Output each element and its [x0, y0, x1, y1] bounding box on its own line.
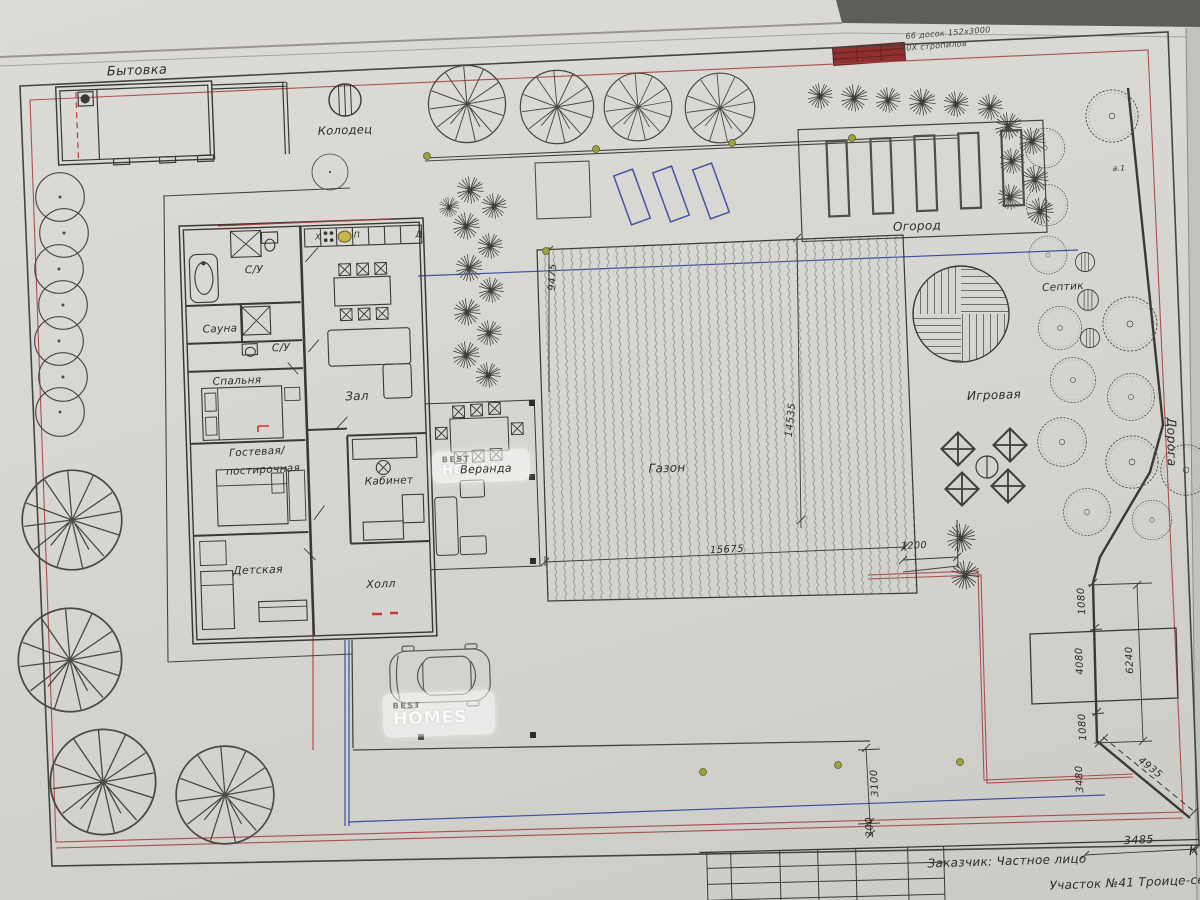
light-marker-icon — [543, 248, 550, 255]
well-symbol — [328, 83, 361, 116]
tree-icon — [520, 70, 593, 143]
garden-chair-icon — [991, 469, 1024, 502]
chair-icon — [488, 402, 500, 414]
dim-9475: 9475 — [547, 263, 559, 291]
tree-icon — [604, 73, 672, 141]
septic-tank-icon — [1075, 252, 1094, 271]
bush-icon — [947, 524, 975, 553]
dim-3100: 3100 — [869, 769, 881, 797]
bush-icon — [454, 298, 480, 325]
site-cabin — [56, 78, 290, 167]
dim-3485: 3485 — [1124, 833, 1155, 847]
light-marker-icon — [849, 135, 856, 142]
watermark-veranda: BEST HOMES — [431, 448, 530, 483]
house-plan — [179, 218, 437, 644]
dim-15675: 15675 — [710, 544, 745, 556]
shrub-icon — [312, 154, 348, 190]
light-marker-icon — [700, 769, 707, 776]
garden-chair-icon — [945, 472, 978, 505]
dim-3480: 3480 — [1074, 765, 1086, 793]
tree-icon — [50, 729, 155, 834]
tree-icon — [1029, 236, 1067, 274]
bush-icon — [995, 112, 1021, 139]
dim-1080-bottom: 1080 — [1077, 713, 1089, 741]
blue-beds — [614, 163, 730, 225]
shrub-icon — [40, 209, 89, 258]
tree-icon — [1038, 306, 1081, 349]
bush-icon — [808, 83, 833, 109]
septic-tank-icon — [1080, 328, 1099, 347]
site-plan-photo: Бытовка Колодец С/У Сауна С/У Спальня За… — [0, 0, 1200, 900]
bush-icon — [457, 176, 483, 203]
watermark-line2: HOMES — [393, 707, 486, 729]
chair-icon — [435, 427, 447, 439]
tree-icon — [18, 608, 121, 711]
chair-icon — [471, 404, 483, 416]
tree-icon — [1051, 358, 1096, 403]
bush-icon — [841, 84, 867, 111]
bush-icon — [479, 277, 504, 303]
tree-icon — [1038, 418, 1087, 467]
chair-icon — [340, 309, 352, 321]
chair-icon — [339, 264, 351, 276]
tree-icon — [1132, 500, 1172, 540]
tree-icon — [428, 65, 505, 142]
dim-6240: 6240 — [1124, 646, 1136, 674]
bush-icon — [477, 320, 502, 346]
watermark-car: BEST HOMES — [382, 690, 495, 738]
garden-table-set — [976, 456, 998, 478]
tree-icon — [685, 73, 755, 143]
garden-chair-icon — [941, 432, 974, 465]
site-plan-linework — [0, 0, 1200, 900]
shrub-icon — [35, 245, 84, 294]
bush-icon — [978, 94, 1003, 120]
septic-tank-icon — [1078, 290, 1099, 311]
title-block — [700, 839, 1200, 900]
post-marker-icon — [530, 558, 536, 564]
shrub-icon — [39, 281, 88, 330]
bush-icon — [482, 193, 507, 219]
shrub-icon — [36, 388, 85, 437]
chair-icon — [358, 308, 370, 320]
chair-icon — [376, 307, 388, 319]
dim-4080: 4080 — [1074, 647, 1086, 675]
garden-chair-icon — [993, 428, 1026, 461]
tree-icon — [1106, 436, 1158, 488]
pad-square — [535, 161, 591, 219]
bush-icon — [439, 197, 459, 217]
light-marker-icon — [835, 762, 842, 769]
bush-icon — [876, 87, 901, 113]
tree-icon — [1103, 297, 1157, 351]
tree-icon — [176, 746, 274, 844]
bush-icon — [909, 88, 935, 115]
dim-300: 300 — [864, 816, 876, 837]
bush-icon — [453, 341, 479, 368]
light-marker-icon — [593, 146, 600, 153]
dim-1080-top: 1080 — [1076, 587, 1088, 615]
bush-icon — [476, 362, 501, 388]
dim-1200: 1200 — [901, 540, 928, 552]
post-marker-icon — [529, 400, 535, 406]
light-marker-icon — [729, 140, 736, 147]
shrub-icon — [39, 353, 88, 402]
light-marker-icon — [957, 759, 964, 766]
tree-icon — [1064, 489, 1111, 536]
bush-icon — [944, 91, 969, 117]
garden-chairs — [941, 428, 1026, 505]
photo-background — [836, 0, 1200, 27]
bush-icon — [453, 212, 479, 239]
shrub-icon — [36, 173, 85, 222]
tree-icon — [1108, 374, 1155, 421]
bush-icon — [456, 254, 482, 281]
chair-icon — [453, 406, 465, 418]
shrub-icon — [35, 317, 84, 366]
chair-icon — [357, 263, 369, 275]
future-building — [1030, 628, 1178, 704]
bush-icon — [478, 233, 503, 259]
watermark-line2: HOMES — [442, 461, 520, 478]
veranda-plan — [425, 400, 540, 570]
play-circle — [913, 266, 1009, 362]
post-marker-icon — [530, 732, 536, 738]
chair-icon — [375, 262, 387, 274]
bush-icon — [1027, 197, 1053, 224]
chair-icon — [511, 423, 523, 435]
light-marker-icon — [424, 153, 431, 160]
bush-icon — [1019, 127, 1045, 154]
